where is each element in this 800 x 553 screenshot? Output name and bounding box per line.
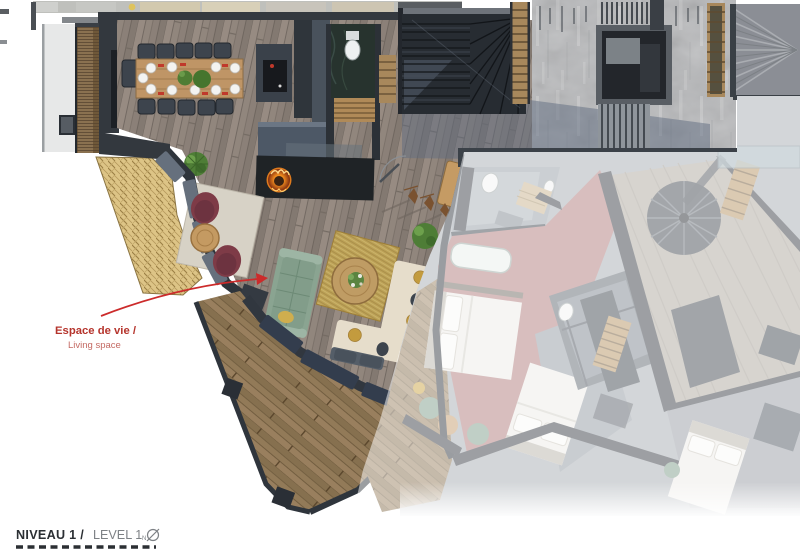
- svg-text:Living space: Living space: [68, 340, 121, 351]
- svg-text:NIVEAU 1 /: NIVEAU 1 /: [16, 528, 84, 542]
- svg-text:N: N: [142, 536, 146, 542]
- svg-text:LEVEL 1: LEVEL 1: [93, 528, 142, 542]
- svg-text:Espace de vie /: Espace de vie /: [55, 325, 137, 337]
